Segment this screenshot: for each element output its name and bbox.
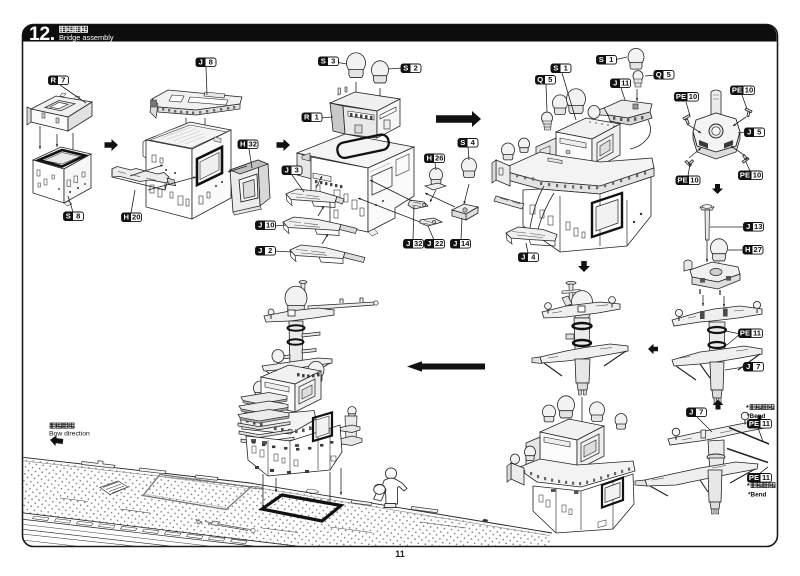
svg-text:J: J <box>199 58 203 67</box>
svg-text:PE: PE <box>677 176 687 185</box>
svg-text:11: 11 <box>753 329 762 338</box>
svg-text:8: 8 <box>209 58 213 67</box>
svg-text:H: H <box>240 140 245 149</box>
svg-text:PE: PE <box>740 171 750 180</box>
svg-text:11: 11 <box>621 79 630 88</box>
svg-text:2: 2 <box>414 64 418 73</box>
svg-text:32: 32 <box>414 239 422 248</box>
svg-text:Bridge assembly: Bridge assembly <box>59 33 114 42</box>
svg-text:7: 7 <box>61 76 65 85</box>
svg-text:J: J <box>689 408 693 417</box>
svg-text:3: 3 <box>295 166 299 175</box>
svg-text:J: J <box>258 221 262 230</box>
svg-text:10: 10 <box>753 171 761 180</box>
svg-text:S: S <box>460 138 465 147</box>
svg-text:11: 11 <box>762 473 771 482</box>
svg-text:2: 2 <box>268 246 272 255</box>
svg-text:27: 27 <box>754 245 762 254</box>
svg-text:7: 7 <box>756 362 760 371</box>
svg-text:*: * <box>746 405 749 412</box>
svg-text:10: 10 <box>690 176 698 185</box>
svg-text:R: R <box>51 76 57 85</box>
svg-text:11: 11 <box>395 549 405 559</box>
svg-text:10: 10 <box>266 221 274 230</box>
svg-text:Q: Q <box>537 75 543 84</box>
svg-text:R: R <box>304 113 310 122</box>
svg-text:32: 32 <box>249 140 257 149</box>
svg-text:J: J <box>406 239 410 248</box>
svg-text:13: 13 <box>754 222 762 231</box>
svg-text:H: H <box>124 213 129 222</box>
svg-text:S: S <box>553 64 558 73</box>
svg-text:PE: PE <box>676 92 686 101</box>
svg-text:PE: PE <box>749 419 759 428</box>
svg-text:22: 22 <box>435 239 443 248</box>
svg-text:J: J <box>285 166 289 175</box>
svg-text:S: S <box>599 55 604 64</box>
svg-text:8: 8 <box>76 212 80 221</box>
svg-text:Q: Q <box>656 70 662 79</box>
svg-text:J: J <box>427 239 431 248</box>
svg-text:H: H <box>427 154 432 163</box>
svg-text:PE: PE <box>749 473 759 482</box>
svg-text:12.: 12. <box>29 23 55 45</box>
svg-text:20: 20 <box>132 213 140 222</box>
svg-text:S: S <box>403 64 408 73</box>
svg-text:J: J <box>747 128 751 137</box>
svg-text:J: J <box>746 222 750 231</box>
svg-text:J: J <box>746 362 750 371</box>
svg-text:7: 7 <box>699 408 703 417</box>
svg-text:3: 3 <box>331 57 335 66</box>
svg-text:J: J <box>521 253 525 262</box>
svg-text:H: H <box>745 245 750 254</box>
svg-text:10: 10 <box>745 86 753 95</box>
svg-text:J: J <box>258 246 262 255</box>
svg-text:J: J <box>453 239 457 248</box>
svg-text:10: 10 <box>689 92 697 101</box>
svg-text:PE: PE <box>732 86 742 95</box>
svg-text:S: S <box>66 212 71 221</box>
svg-text:11: 11 <box>762 419 771 428</box>
svg-text:*Bend: *Bend <box>748 492 767 499</box>
svg-text:PE: PE <box>740 329 750 338</box>
svg-text:26: 26 <box>435 154 443 163</box>
svg-text:*: * <box>747 483 750 490</box>
svg-text:S: S <box>321 57 326 66</box>
svg-text:14: 14 <box>461 239 470 248</box>
svg-text:J: J <box>613 79 617 88</box>
